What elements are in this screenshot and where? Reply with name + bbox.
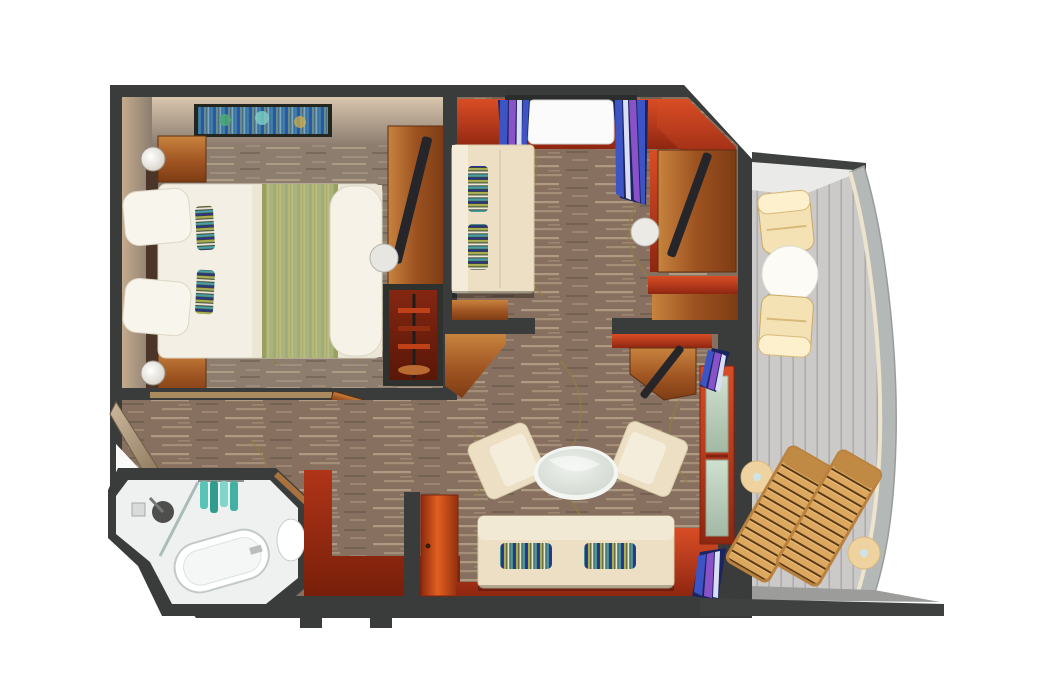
balcony-chair-bottom	[758, 294, 814, 357]
bathroom-sink	[277, 519, 305, 561]
bed-runner-texture	[264, 184, 336, 358]
bedroom	[110, 97, 444, 417]
accent-pillow-bottom	[195, 270, 215, 315]
sitting-living-wall-right	[612, 318, 738, 334]
desk-red-edge	[650, 150, 658, 272]
bathroom	[108, 468, 310, 616]
balcony-door	[700, 366, 734, 544]
sofa-pillow	[468, 224, 488, 270]
pillow-bottom	[122, 277, 192, 337]
headboard	[146, 148, 158, 390]
wood-threshold	[150, 392, 332, 398]
glass	[860, 549, 868, 557]
sofa-pillow-group	[584, 543, 636, 569]
minibar-cabinet	[652, 294, 738, 320]
sofa-pillow-group	[500, 543, 552, 569]
sitting-living-wall-left	[443, 318, 535, 334]
glass	[753, 473, 761, 481]
shoes	[398, 365, 430, 375]
runner-edge-l	[262, 184, 266, 358]
queen-bed	[122, 184, 382, 358]
tv-cabinet-top	[612, 334, 712, 348]
curtain-right	[613, 100, 648, 205]
entry-door-handle	[426, 544, 431, 549]
wall-stub-right	[370, 612, 392, 628]
living-sofa	[478, 516, 674, 591]
foot-bolster	[330, 186, 382, 356]
minibar-top	[648, 276, 738, 294]
hanger	[398, 308, 430, 313]
bedside-lamp-bottom	[141, 361, 165, 385]
sofa-side-cabinet	[452, 300, 508, 320]
pillow-top	[122, 187, 192, 247]
shower-control	[132, 503, 145, 516]
balcony-chair-top	[757, 189, 815, 254]
accent-pillow-top	[195, 206, 215, 251]
oval-coffee-table	[538, 449, 614, 495]
sitting-sofa	[452, 145, 534, 298]
wall-art	[194, 104, 332, 137]
floorplan-page	[0, 0, 1048, 699]
sitting-stool	[631, 218, 659, 246]
bedroom-stool	[370, 244, 398, 272]
wall-stub-left	[300, 612, 322, 628]
hanger	[398, 326, 430, 331]
sofa-pillow	[468, 166, 488, 212]
bedroom-wardrobe	[383, 284, 443, 386]
entry-door-frame	[404, 492, 420, 596]
bedside-lamp-top	[141, 147, 165, 171]
hanger	[398, 344, 430, 349]
floorplan-canvas	[0, 0, 1048, 699]
balcony-round-table	[762, 246, 818, 302]
window	[528, 100, 614, 144]
